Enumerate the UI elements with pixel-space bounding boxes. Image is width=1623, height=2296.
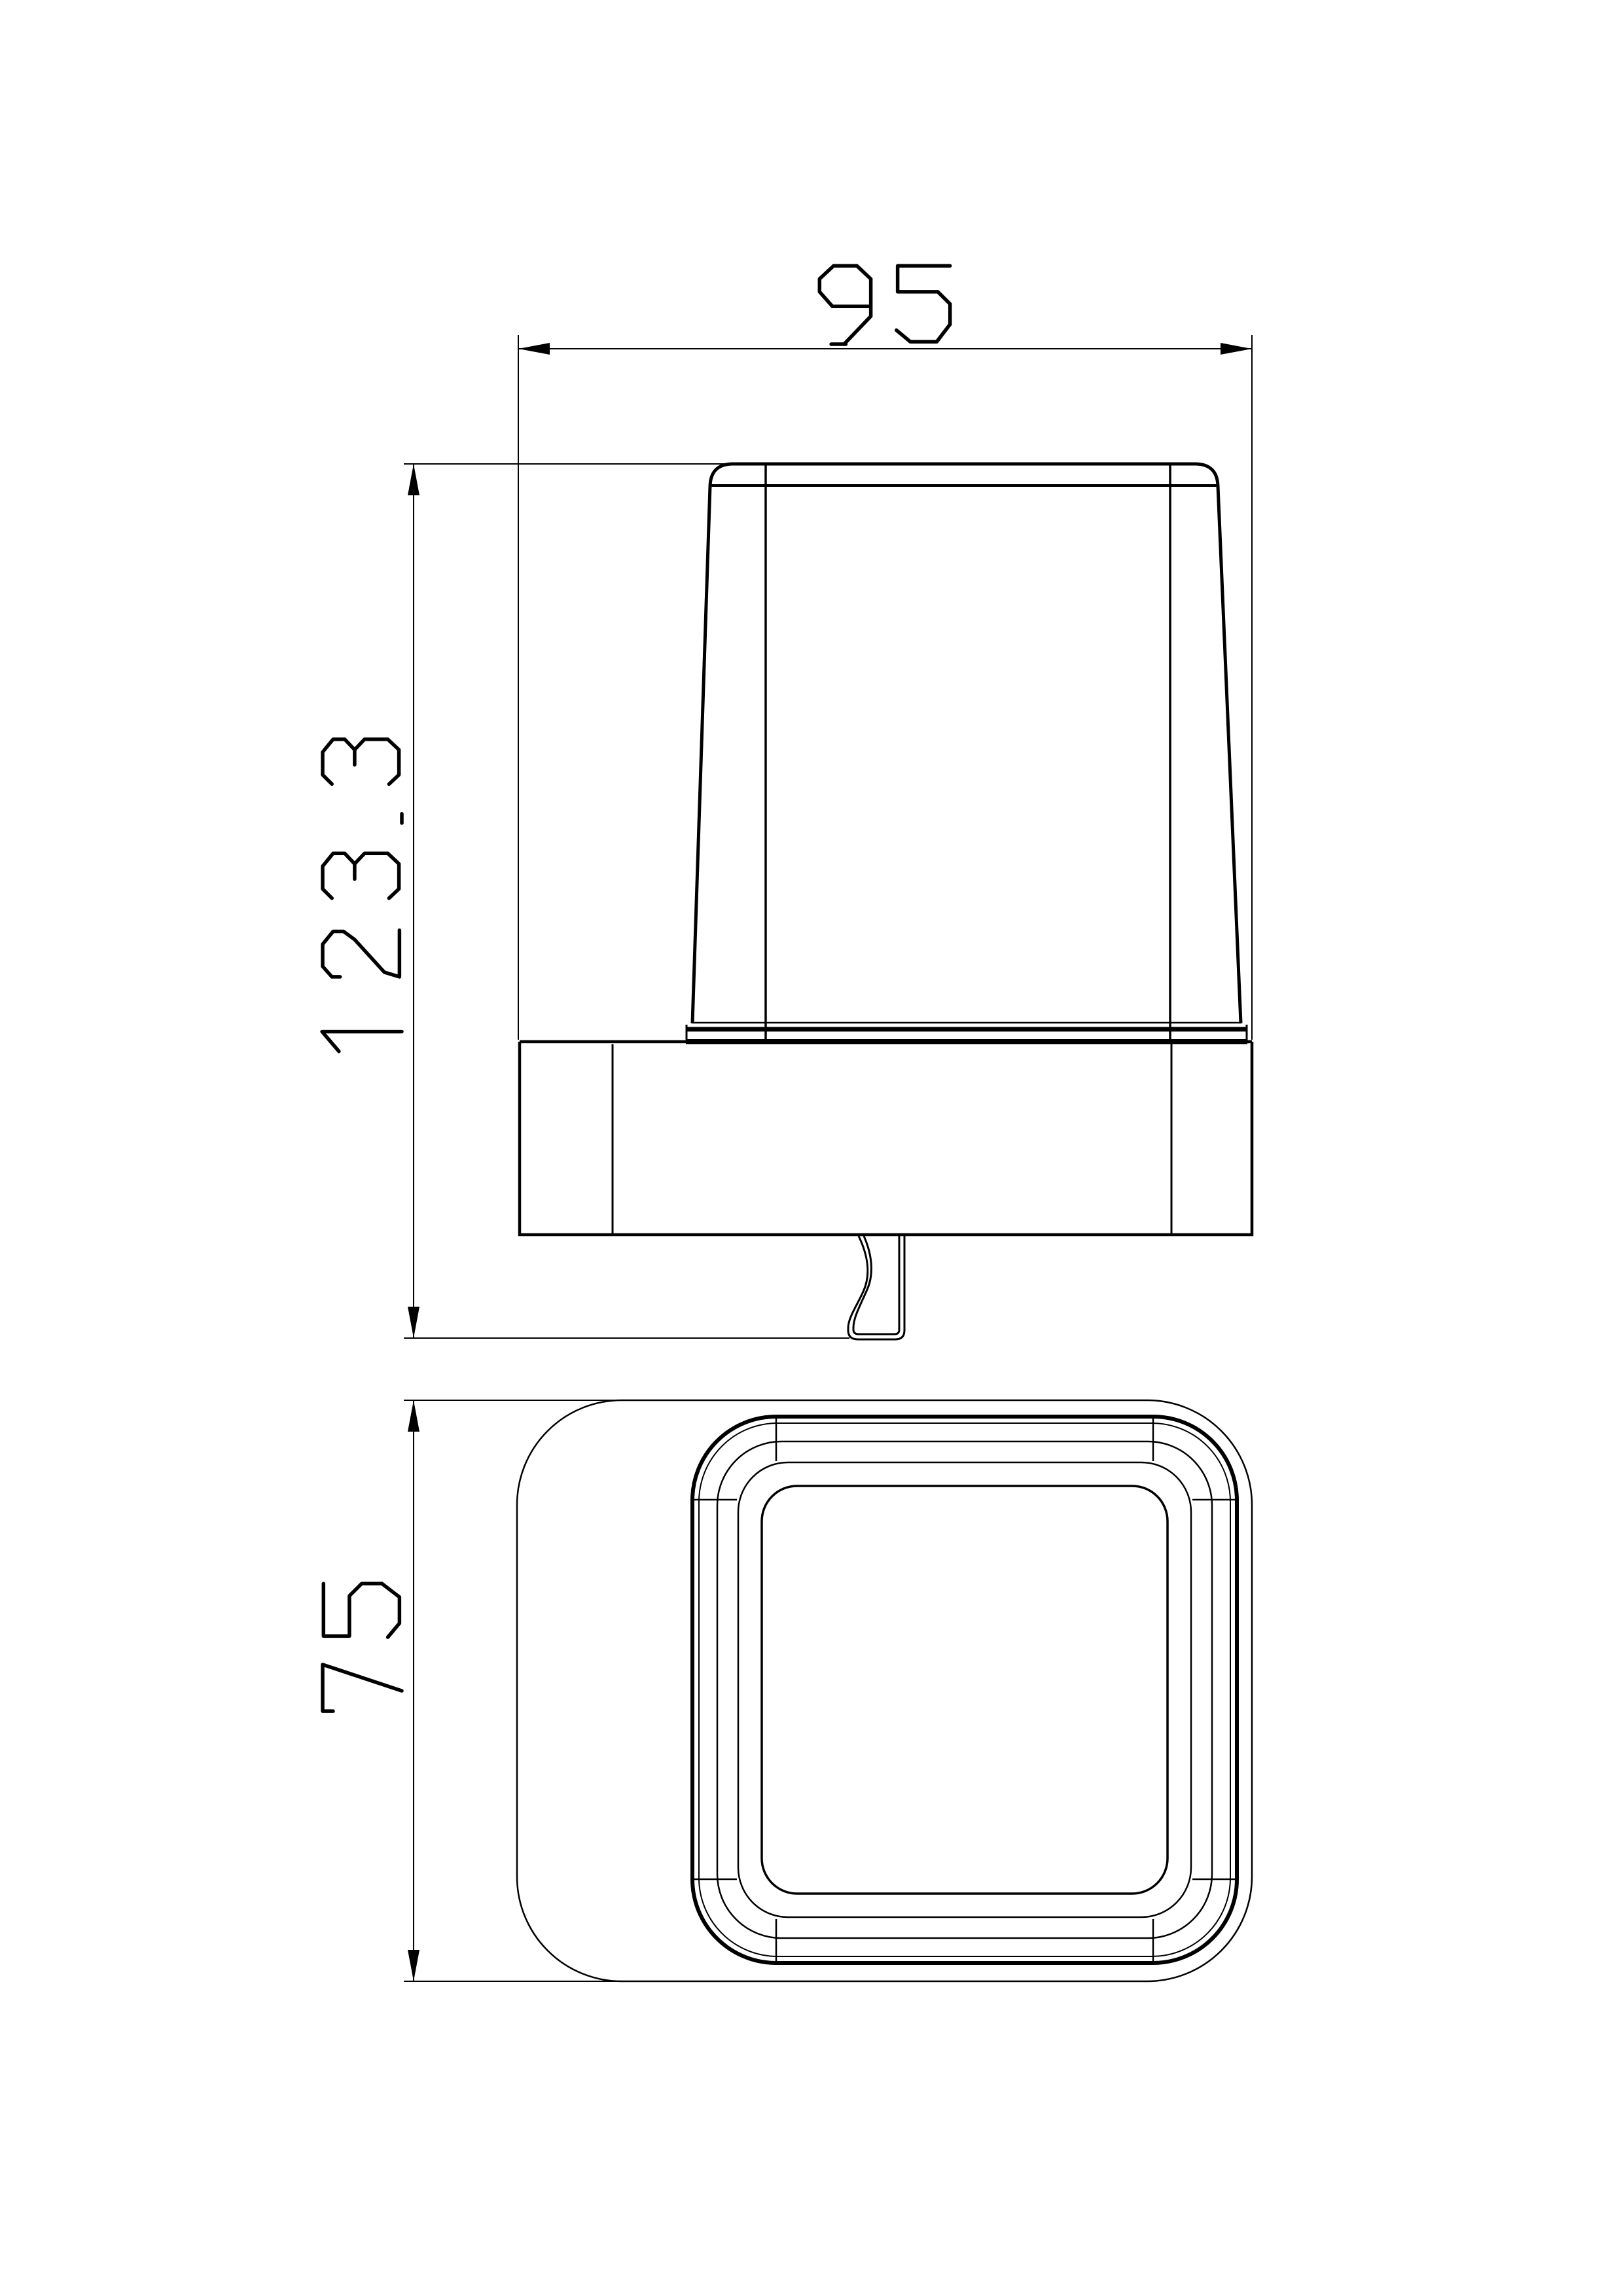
dimension-digits xyxy=(323,1583,402,1711)
cup-outline xyxy=(692,464,1241,1023)
dim-height-text xyxy=(322,739,402,1051)
dim-height xyxy=(322,464,849,1338)
cup-ring-middle xyxy=(717,1441,1212,1938)
top-cup-rings xyxy=(692,1417,1237,1963)
front-view xyxy=(322,266,1252,1339)
bracket-body xyxy=(520,1042,1252,1235)
dim-depth-arrow-top xyxy=(408,1400,419,1432)
dim-height-arrow-bottom xyxy=(408,1307,419,1338)
cup-ring-inner xyxy=(738,1462,1191,1917)
drawing-sheet xyxy=(0,0,1623,2296)
dim-depth-arrow-bottom xyxy=(408,1950,419,1981)
top-view xyxy=(323,1400,1252,1981)
nozzle-outer xyxy=(848,1236,904,1339)
dim-depth-text xyxy=(323,1583,402,1711)
dim-width xyxy=(518,266,1252,1040)
cup-opening xyxy=(762,1486,1168,1894)
front-pump-nozzle xyxy=(848,1236,904,1339)
nozzle-inner xyxy=(853,1236,899,1334)
cup-ring-outer xyxy=(692,1417,1237,1963)
front-cup xyxy=(686,464,1247,1042)
dim-height-arrow-top xyxy=(408,464,419,495)
dim-width-text xyxy=(819,266,950,344)
dimension-digits xyxy=(322,739,402,1051)
dim-depth xyxy=(323,1400,622,1981)
front-holder-bracket xyxy=(520,1042,1252,1235)
dim-width-arrow-left xyxy=(518,343,550,355)
corner-tick-marks xyxy=(694,1418,1236,1963)
cup-ring-outer-echo xyxy=(699,1423,1230,1956)
dim-width-arrow-right xyxy=(1221,343,1252,355)
dimension-digits xyxy=(819,266,950,344)
